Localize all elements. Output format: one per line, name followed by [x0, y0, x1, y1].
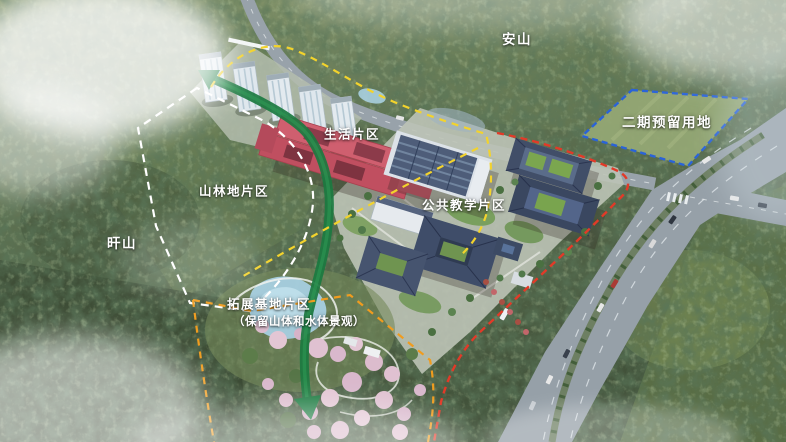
- site-plan-canvas: [0, 0, 786, 442]
- campus-master-plan-rendering: 安山 二期预留用地 生活片区 山林地片区 旰山 公共教学片区 拓展基地片区 （保…: [0, 0, 786, 442]
